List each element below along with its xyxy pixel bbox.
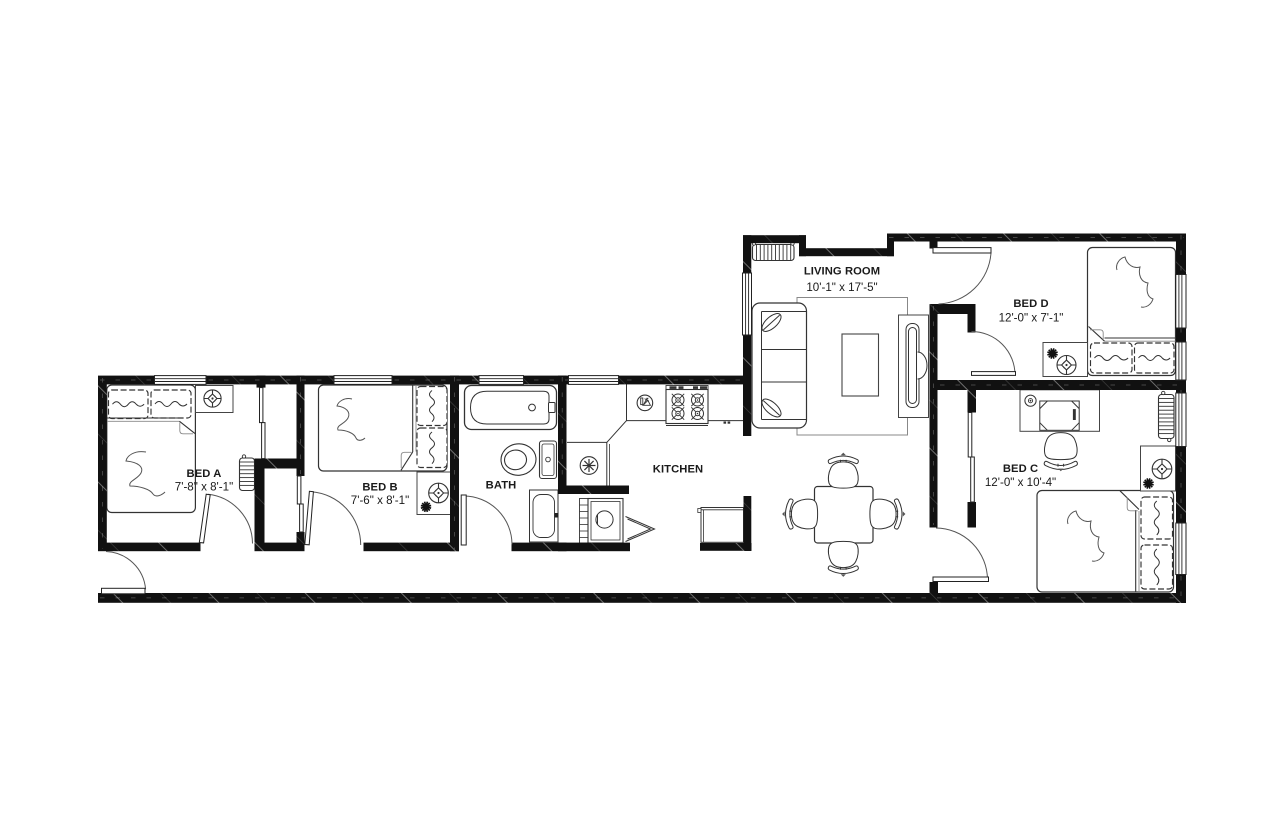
svg-text:BED A: BED A — [187, 468, 222, 480]
svg-text:12'-0" x 10'-4": 12'-0" x 10'-4" — [985, 476, 1056, 489]
svg-text:BED D: BED D — [1013, 298, 1048, 310]
svg-text:7'-6" x 8'-1": 7'-6" x 8'-1" — [351, 494, 409, 507]
svg-text:LIVING ROOM: LIVING ROOM — [804, 266, 880, 278]
svg-text:12'-0" x 7'-1": 12'-0" x 7'-1" — [999, 312, 1064, 325]
svg-text:BED C: BED C — [1003, 463, 1038, 475]
svg-text:KITCHEN: KITCHEN — [653, 464, 703, 476]
svg-text:7'-8" x 8'-1": 7'-8" x 8'-1" — [175, 481, 233, 494]
svg-text:BED B: BED B — [362, 482, 397, 494]
svg-text:10'-1" x 17'-5": 10'-1" x 17'-5" — [806, 281, 877, 294]
svg-text:BATH: BATH — [486, 480, 517, 492]
